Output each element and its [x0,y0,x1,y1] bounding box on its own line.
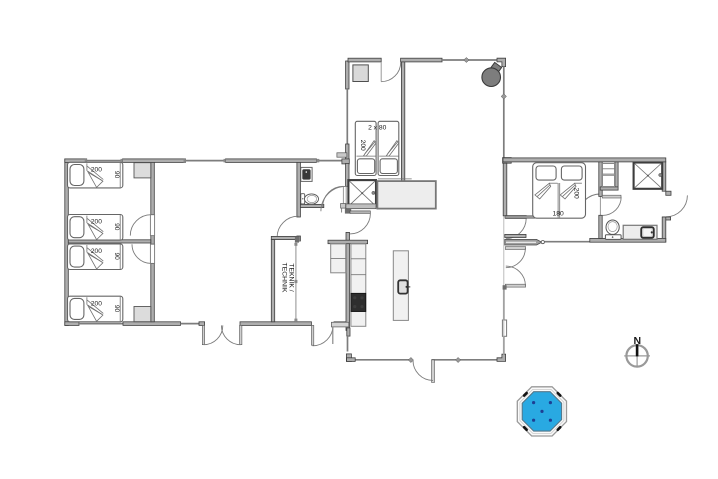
svg-text:200: 200 [359,140,366,151]
svg-text:200: 200 [91,248,102,255]
svg-text:TEKNIK /TECHNIK: TEKNIK /TECHNIK [280,263,294,293]
svg-text:2 x 80: 2 x 80 [368,125,386,132]
svg-text:200: 200 [572,188,579,199]
svg-text:90: 90 [113,223,120,231]
svg-text:200: 200 [91,300,102,307]
svg-text:200: 200 [91,219,102,226]
svg-text:90: 90 [113,305,120,313]
svg-text:90: 90 [113,253,120,261]
svg-text:N: N [634,335,642,347]
svg-text:200: 200 [91,166,102,173]
svg-text:180: 180 [553,210,564,217]
svg-text:90: 90 [113,171,120,179]
